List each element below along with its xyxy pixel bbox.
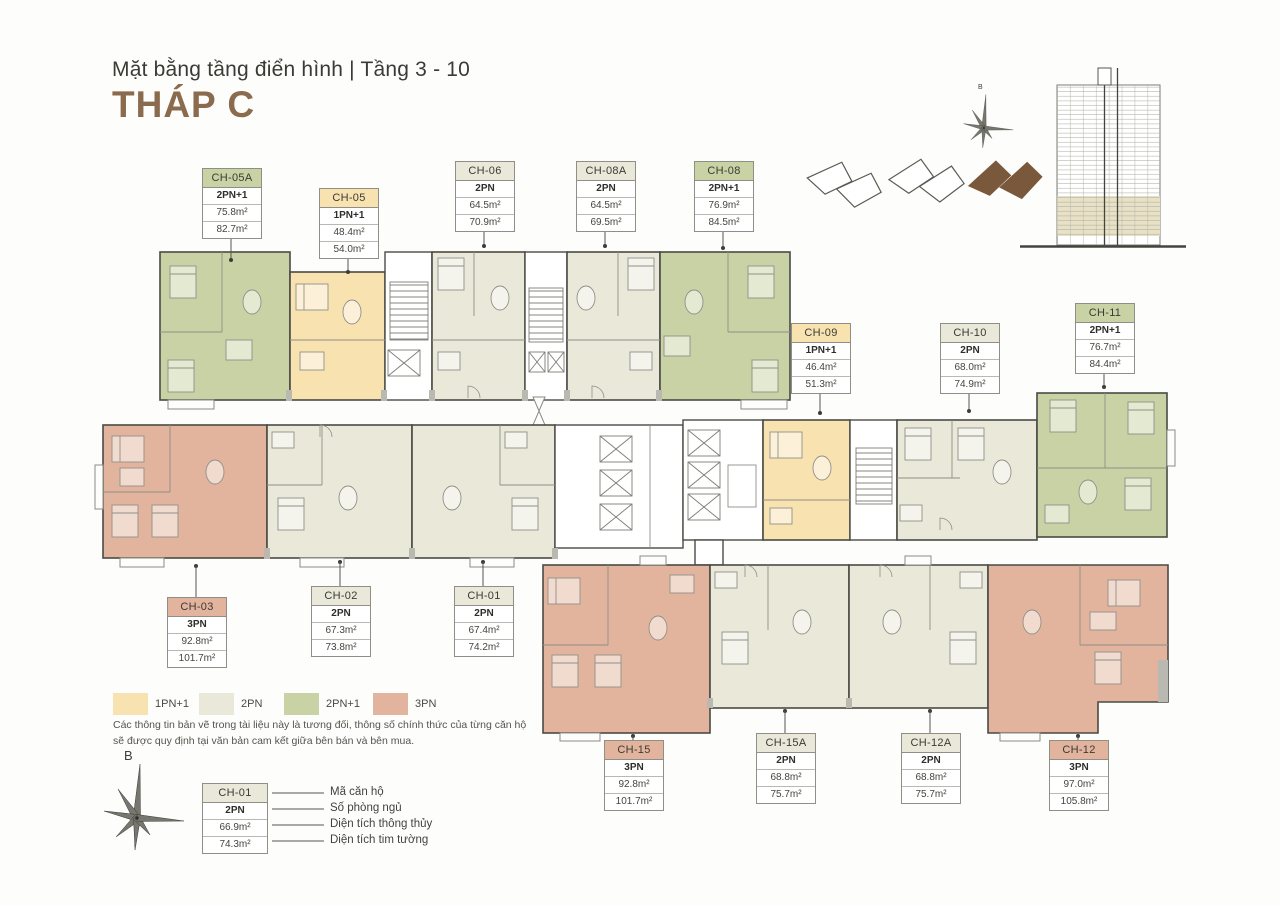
unit-callout-ch-06: CH-06 2PN 64.5m² 70.9m² xyxy=(455,161,515,232)
unit-plan-ch-01 xyxy=(412,425,555,558)
unit-callout-ch-05a: CH-05A 2PN+1 75.8m² 82.7m² xyxy=(202,168,262,239)
unit-callout-ch-12: CH-12 3PN 97.0m² 105.8m² xyxy=(1049,740,1109,811)
sample-key-code: CH-01 xyxy=(203,784,267,803)
sample-key-label-gross: Diện tích tim tường xyxy=(330,834,428,846)
unit-callout-ch-10: CH-10 2PN 68.0m² 74.9m² xyxy=(940,323,1000,394)
unit-callout-ch-09: CH-09 1PN+1 46.4m² 51.3m² xyxy=(791,323,851,394)
tower-footprint-c-highlighted xyxy=(963,146,1047,217)
sample-key-box: CH-01 2PN 66.9m² 74.3m² xyxy=(202,783,268,854)
tower-footprint-a xyxy=(806,158,882,211)
legend-label-2pn: 2PN xyxy=(241,698,262,710)
top-wing xyxy=(160,252,790,425)
compass-north-label: B xyxy=(124,748,133,763)
unit-callout-ch-03: CH-03 3PN 92.8m² 101.7m² xyxy=(167,597,227,668)
elevator-icon xyxy=(600,470,632,496)
bottom-wing xyxy=(543,540,1168,741)
site-key-plan xyxy=(806,95,1047,218)
sample-key-label-bedrooms: Số phòng ngủ xyxy=(330,802,402,814)
unit-callout-ch-12a: CH-12A 2PN 68.8m² 75.7m² xyxy=(901,733,961,804)
unit-callout-ch-15a: CH-15A 2PN 68.8m² 75.7m² xyxy=(756,733,816,804)
middle-wing xyxy=(95,393,1175,567)
unit-callout-ch-02: CH-02 2PN 67.3m² 73.8m² xyxy=(311,586,371,657)
sample-key-type: 2PN xyxy=(203,803,267,820)
unit-callout-ch-15: CH-15 3PN 92.8m² 101.7m² xyxy=(604,740,664,811)
legend-swatch-1pn1 xyxy=(113,693,148,715)
unit-callout-ch-08: CH-08 2PN+1 76.9m² 84.5m² xyxy=(694,161,754,232)
tower-footprint-b xyxy=(886,151,967,213)
unit-callout-ch-08a: CH-08A 2PN 64.5m² 69.5m² xyxy=(576,161,636,232)
legend-swatch-3pn xyxy=(373,693,408,715)
compass-rose-small xyxy=(964,95,1014,148)
sample-key-leaders xyxy=(272,793,324,841)
unit-callout-ch-01: CH-01 2PN 67.4m² 74.2m² xyxy=(454,586,514,657)
elevator-icon xyxy=(688,462,720,488)
elevator-icon xyxy=(688,430,720,456)
unit-plan-ch-12 xyxy=(988,565,1168,733)
unit-callout-ch-05: CH-05 1PN+1 48.4m² 54.0m² xyxy=(319,188,379,259)
floor-plan-page: Mặt bằng tầng điển hình | Tầng 3 - 10 TH… xyxy=(0,0,1280,905)
tower-elevation xyxy=(1020,68,1186,247)
sample-key-label-code: Mã căn hộ xyxy=(330,786,384,798)
corridor-connector xyxy=(695,540,723,565)
unit-callout-ch-11: CH-11 2PN+1 76.7m² 84.4m² xyxy=(1075,303,1135,374)
elevator-icon xyxy=(388,350,420,376)
legend-label-2pn1: 2PN+1 xyxy=(326,698,360,710)
compass-rose-large xyxy=(104,764,184,850)
sample-key-net-area: 66.9m² xyxy=(203,820,267,837)
elevator-icon xyxy=(688,494,720,520)
sample-key-label-net: Diện tích thông thủy xyxy=(330,818,432,830)
legend-swatch-2pn xyxy=(199,693,234,715)
elevator-icon xyxy=(600,504,632,530)
elevator-icon xyxy=(600,436,632,462)
sample-key-gross-area: 74.3m² xyxy=(203,837,267,853)
legend-swatch-2pn1 xyxy=(284,693,319,715)
legend-label-3pn: 3PN xyxy=(415,698,436,710)
compass-north-label-small: B xyxy=(978,84,983,91)
legend-label-1pn1: 1PN+1 xyxy=(155,698,189,710)
